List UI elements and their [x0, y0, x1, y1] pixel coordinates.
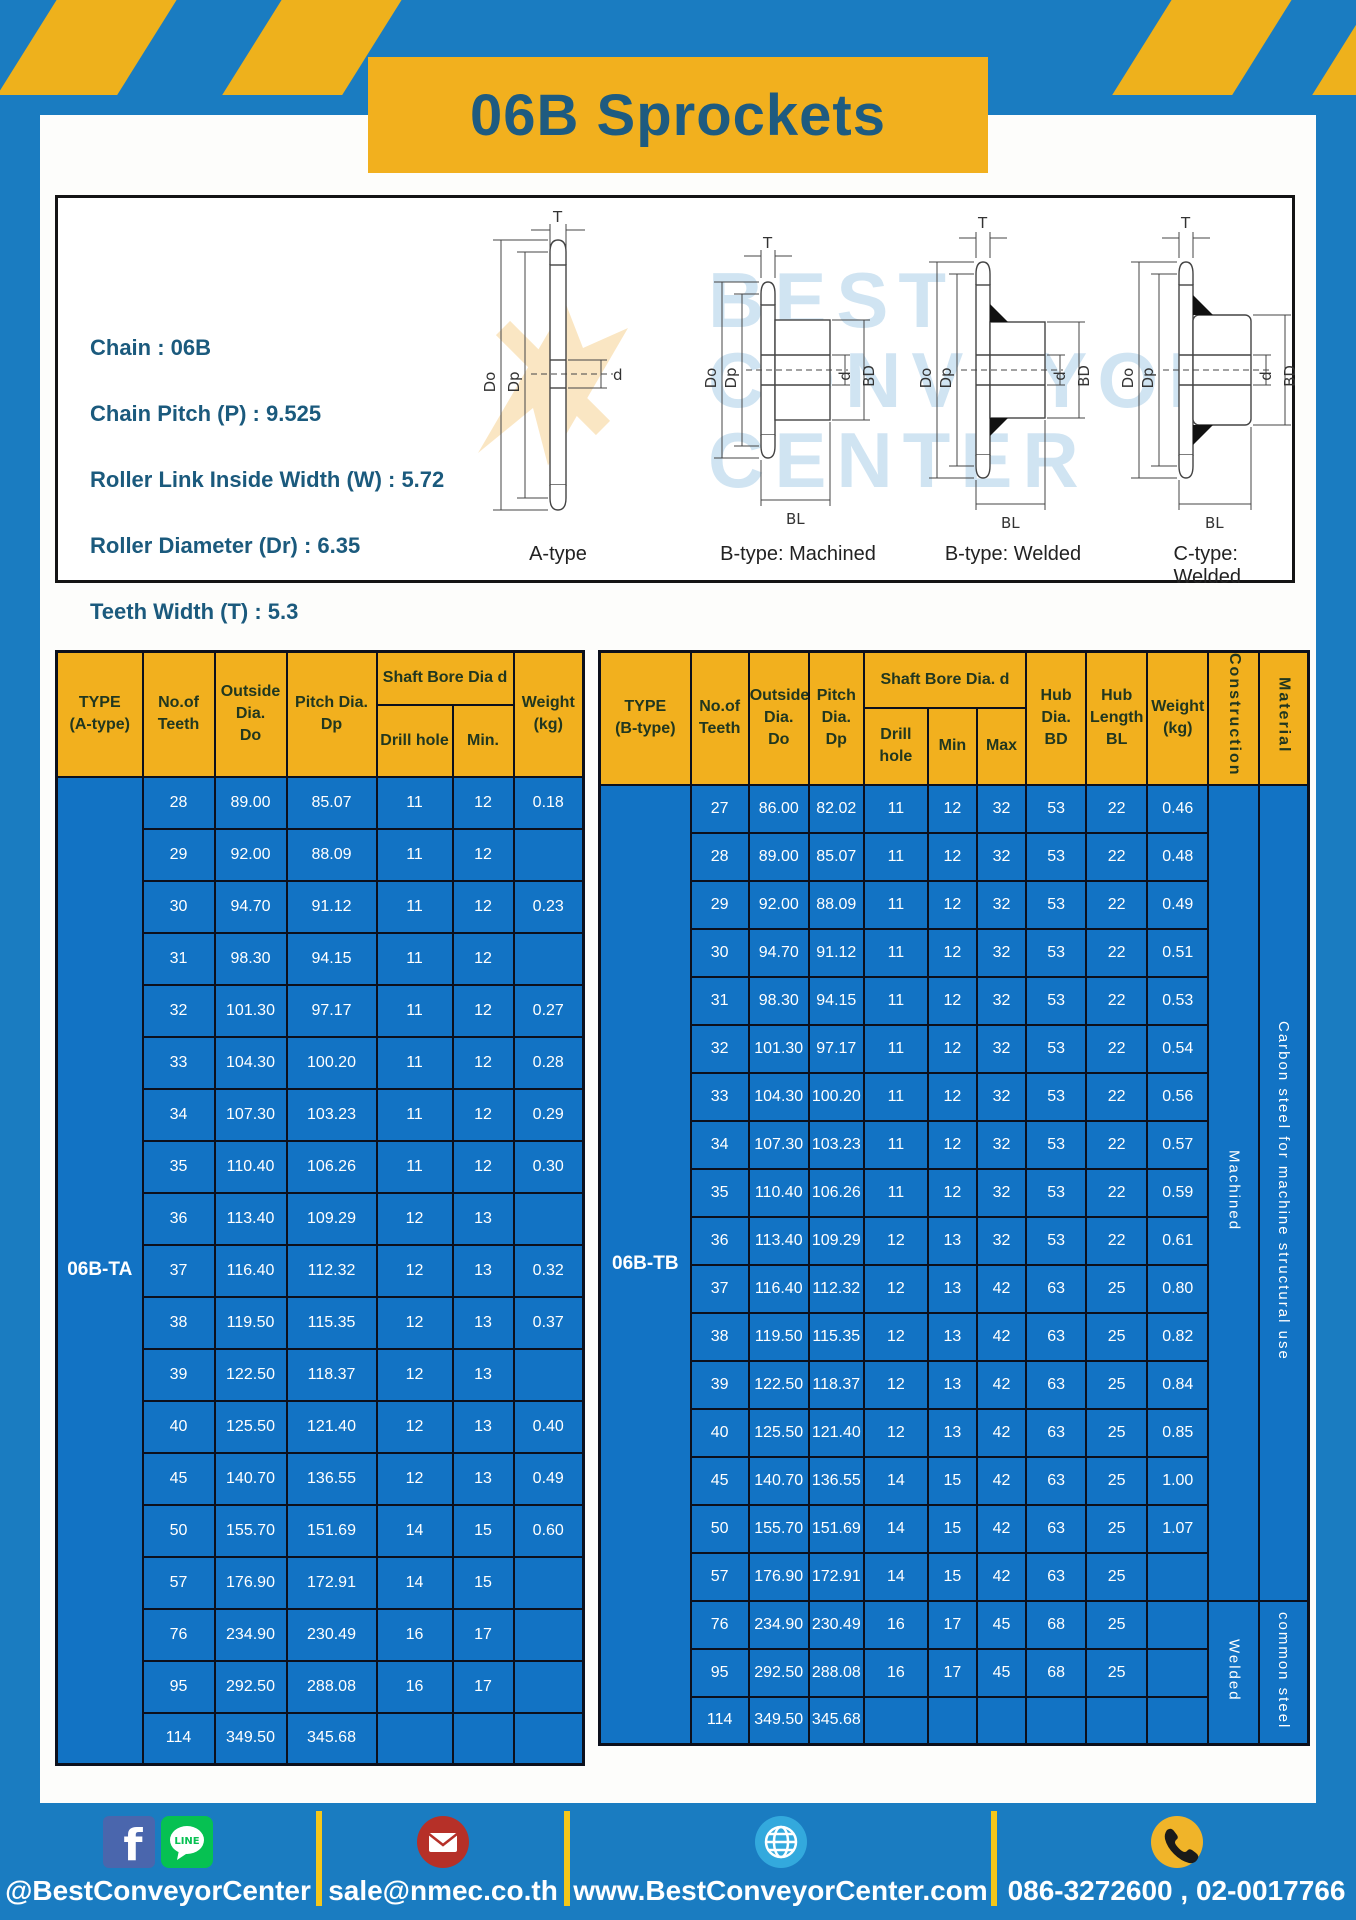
footer-contact-bar: f LINE @BestConveyorCenter sale — [0, 1803, 1356, 1920]
table-cell: 107.30 — [215, 1089, 287, 1141]
table-cell: 39 — [691, 1361, 749, 1409]
table-cell: 13 — [453, 1193, 514, 1245]
table-cell: 0.51 — [1147, 929, 1208, 977]
table-cell: 11 — [377, 985, 453, 1037]
dim-label-t: T — [977, 214, 988, 232]
col-header-min: Min. — [453, 705, 514, 777]
table-cell: 12 — [377, 1297, 453, 1349]
table-cell: 1.07 — [1147, 1505, 1208, 1553]
table-cell: 234.90 — [749, 1601, 809, 1649]
table-cell: 0.49 — [1147, 881, 1208, 929]
table-row: 50155.70151.6914154263251.07 — [600, 1505, 1309, 1553]
caption-b-machined: B-type: Machined — [720, 543, 876, 566]
table-cell: 22 — [1086, 929, 1147, 977]
col-header-teeth: No.of Teeth — [691, 652, 749, 785]
footer-website-section: www.BestConveyorCenter.com — [570, 1803, 991, 1920]
table-cell: 91.12 — [287, 881, 377, 933]
table-cell: 0.85 — [1147, 1409, 1208, 1457]
table-cell: 121.40 — [809, 1409, 864, 1457]
table-cell: 33 — [143, 1037, 215, 1089]
table-cell: 12 — [864, 1409, 928, 1457]
table-cell: 42 — [977, 1265, 1026, 1313]
table-row: 95292.50288.081617456825 — [600, 1649, 1309, 1697]
footer-social-section: f LINE @BestConveyorCenter — [0, 1803, 316, 1920]
table-cell: 12 — [928, 1121, 977, 1169]
table-row: 36113.40109.2912133253220.61 — [600, 1217, 1309, 1265]
table-cell: 107.30 — [749, 1121, 809, 1169]
table-cell: 37 — [143, 1245, 215, 1297]
table-cell: 88.09 — [809, 881, 864, 929]
table-cell: 28 — [143, 777, 215, 829]
table-cell: 22 — [1086, 881, 1147, 929]
svg-text:f: f — [123, 1820, 143, 1868]
svg-text:LINE: LINE — [174, 1836, 199, 1847]
table-cell: 32 — [977, 833, 1026, 881]
table-cell: 349.50 — [215, 1713, 287, 1765]
table-cell: 14 — [864, 1553, 928, 1601]
table-cell — [514, 1557, 584, 1609]
spec-block: Chain : 06B Chain Pitch (P) : 9.525 Roll… — [90, 298, 444, 661]
table-cell: 118.37 — [287, 1349, 377, 1401]
table-cell: 25 — [1086, 1313, 1147, 1361]
table-cell: 0.59 — [1147, 1169, 1208, 1217]
table-cell — [1147, 1697, 1208, 1745]
construction-cell: Machined — [1208, 785, 1259, 1601]
table-cell: 63 — [1026, 1409, 1086, 1457]
table-row: 2889.0085.0711123253220.48 — [600, 833, 1309, 881]
globe-icon[interactable] — [754, 1815, 808, 1869]
hazard-stripe — [1312, 0, 1356, 95]
table-cell: 53 — [1026, 881, 1086, 929]
table-cell: 25 — [1086, 1601, 1147, 1649]
dim-label-d: d — [613, 366, 623, 384]
table-cell: 0.29 — [514, 1089, 584, 1141]
table-cell: 32 — [977, 1073, 1026, 1121]
table-cell: 45 — [977, 1649, 1026, 1697]
table-cell: 88.09 — [287, 829, 377, 881]
table-cell: 12 — [377, 1193, 453, 1245]
col-header-pitch-dia: Pitch Dia. Dp — [809, 652, 864, 785]
dim-label-bd: BD — [1075, 365, 1093, 387]
table-cell: 76 — [143, 1609, 215, 1661]
col-header-hub-dia: Hub Dia. BD — [1026, 652, 1086, 785]
col-header-shaft-bore: Shaft Bore Dia. d — [864, 652, 1026, 708]
table-cell: 35 — [691, 1169, 749, 1217]
table-cell: 12 — [453, 1037, 514, 1089]
table-cell: 172.91 — [287, 1557, 377, 1609]
table-cell: 31 — [143, 933, 215, 985]
dim-label-bd: BD — [860, 365, 878, 387]
table-cell — [377, 1713, 453, 1765]
table-cell: 53 — [1026, 1169, 1086, 1217]
spec-chain: Chain : 06B — [90, 331, 444, 364]
table-cell: 25 — [1086, 1409, 1147, 1457]
table-cell: 12 — [377, 1453, 453, 1505]
table-cell: 0.37 — [514, 1297, 584, 1349]
table-cell: 98.30 — [749, 977, 809, 1025]
table-cell: 17 — [928, 1601, 977, 1649]
table-cell: 109.29 — [809, 1217, 864, 1265]
table-cell: 11 — [377, 933, 453, 985]
table-cell: 11 — [864, 1121, 928, 1169]
table-cell: 42 — [977, 1409, 1026, 1457]
website-url[interactable]: www.BestConveyorCenter.com — [573, 1875, 987, 1907]
spec-roller-width: Roller Link Inside Width (W) : 5.72 — [90, 463, 444, 496]
table-cell: 110.40 — [215, 1141, 287, 1193]
table-cell: 63 — [1026, 1361, 1086, 1409]
table-cell: 114 — [143, 1713, 215, 1765]
table-cell: 115.35 — [809, 1313, 864, 1361]
table-cell: 17 — [928, 1649, 977, 1697]
table-cell: 42 — [977, 1457, 1026, 1505]
table-cell: 12 — [928, 1073, 977, 1121]
table-cell — [514, 1349, 584, 1401]
col-header-type: TYPE (B-type) — [600, 652, 691, 785]
table-cell: 22 — [1086, 977, 1147, 1025]
table-cell: 22 — [1086, 785, 1147, 833]
table-cell: 25 — [1086, 1505, 1147, 1553]
email-icon[interactable] — [416, 1815, 470, 1869]
page-title: 06B Sprockets — [470, 82, 886, 149]
table-cell: 292.50 — [749, 1649, 809, 1697]
table-cell: 53 — [1026, 1217, 1086, 1265]
table-cell: 0.56 — [1147, 1073, 1208, 1121]
table-cell: 113.40 — [215, 1193, 287, 1245]
col-header-outside-dia: Outside Dia. Do — [215, 652, 287, 777]
table-cell: 14 — [864, 1505, 928, 1553]
table-cell: 85.07 — [809, 833, 864, 881]
table-cell: 63 — [1026, 1313, 1086, 1361]
table-cell: 110.40 — [749, 1169, 809, 1217]
table-cell: 32 — [977, 1025, 1026, 1073]
table-cell: 0.48 — [1147, 833, 1208, 881]
table-cell: 94.70 — [215, 881, 287, 933]
table-cell: 136.55 — [287, 1453, 377, 1505]
hazard-stripe — [0, 0, 183, 95]
table-cell: 32 — [691, 1025, 749, 1073]
table-cell: 12 — [864, 1265, 928, 1313]
sheet-body: 06B Sprockets BEST CONVEYOR CENTER Chain… — [40, 115, 1316, 1803]
table-row: 33104.30100.2011123253220.56 — [600, 1073, 1309, 1121]
col-header-pitch-dia: Pitch Dia. Dp — [287, 652, 377, 777]
table-cell: 97.17 — [287, 985, 377, 1037]
table-row: 76234.90230.491617456825Weldedcommon ste… — [600, 1601, 1309, 1649]
dim-label-bl: BL — [1001, 514, 1020, 532]
sprocket-diagram-b-welded: T Do Dp d BD BL — [913, 210, 1113, 540]
dim-label-do: Do — [481, 372, 499, 393]
table-cell: 30 — [143, 881, 215, 933]
table-row: 37116.40112.3212134263250.80 — [600, 1265, 1309, 1313]
spec-roller-diameter: Roller Diameter (Dr) : 6.35 — [90, 529, 444, 562]
table-cell: 0.80 — [1147, 1265, 1208, 1313]
table-cell: 32 — [977, 929, 1026, 977]
table-cell: 53 — [1026, 1121, 1086, 1169]
table-cell: 17 — [453, 1661, 514, 1713]
table-cell: 172.91 — [809, 1553, 864, 1601]
dim-label-dp: Dp — [1139, 367, 1157, 388]
table-cell: 116.40 — [749, 1265, 809, 1313]
table-row: 114349.50345.68 — [600, 1697, 1309, 1745]
facebook-icon[interactable]: f — [103, 1816, 155, 1868]
table-cell: 100.20 — [809, 1073, 864, 1121]
table-cell: 32 — [977, 1121, 1026, 1169]
table-cell: 176.90 — [749, 1553, 809, 1601]
table-cell: 114 — [691, 1697, 749, 1745]
table-cell: 36 — [691, 1217, 749, 1265]
table-cell: 12 — [377, 1245, 453, 1297]
table-cell: 14 — [377, 1505, 453, 1557]
table-cell: 14 — [377, 1557, 453, 1609]
table-cell: 112.32 — [809, 1265, 864, 1313]
table-cell: 116.40 — [215, 1245, 287, 1297]
dim-label-t: T — [552, 210, 563, 226]
table-cell: 12 — [864, 1313, 928, 1361]
table-cell: 11 — [864, 977, 928, 1025]
table-cell: 0.46 — [1147, 785, 1208, 833]
table-cell: 11 — [377, 1037, 453, 1089]
table-cell: 15 — [453, 1557, 514, 1609]
table-cell: 57 — [691, 1553, 749, 1601]
table-cell: 98.30 — [215, 933, 287, 985]
table-cell: 125.50 — [215, 1401, 287, 1453]
table-cell: 39 — [143, 1349, 215, 1401]
col-header-drill-hole: Drill hole — [864, 708, 928, 785]
table-cell — [514, 1661, 584, 1713]
table-cell: 29 — [143, 829, 215, 881]
table-cell: 92.00 — [749, 881, 809, 929]
table-cell: 12 — [453, 933, 514, 985]
table-cell: 37 — [691, 1265, 749, 1313]
table-cell: 119.50 — [215, 1297, 287, 1349]
table-cell: 0.23 — [514, 881, 584, 933]
table-cell: 94.15 — [287, 933, 377, 985]
email-address[interactable]: sale@nmec.co.th — [328, 1875, 558, 1907]
dim-label-dp: Dp — [505, 371, 523, 392]
table-cell: 63 — [1026, 1553, 1086, 1601]
table-cell: 76 — [691, 1601, 749, 1649]
phone-numbers[interactable]: 086-3272600 , 02-0017766 — [1008, 1875, 1346, 1907]
table-cell: 14 — [864, 1457, 928, 1505]
table-cell: 11 — [377, 777, 453, 829]
table-cell: 34 — [143, 1089, 215, 1141]
social-handle[interactable]: @BestConveyorCenter — [5, 1875, 311, 1907]
table-cell: 12 — [377, 1401, 453, 1453]
col-header-drill-hole: Drill hole — [377, 705, 453, 777]
table-cell — [514, 1713, 584, 1765]
spec-chain-pitch: Chain Pitch (P) : 9.525 — [90, 397, 444, 430]
sprocket-diagram-c-welded: T Do Dp d BD BL — [1113, 210, 1313, 540]
dim-label-t: T — [762, 234, 773, 252]
col-header-construction: Construction — [1208, 652, 1259, 785]
dim-label-dp: Dp — [937, 367, 955, 388]
table-cell: 22 — [1086, 833, 1147, 881]
table-cell: 15 — [928, 1553, 977, 1601]
table-cell: 11 — [864, 833, 928, 881]
table-cell: 0.61 — [1147, 1217, 1208, 1265]
table-cell: 45 — [977, 1601, 1026, 1649]
table-cell: 32 — [977, 1169, 1026, 1217]
table-cell: 29 — [691, 881, 749, 929]
table-cell: 288.08 — [809, 1649, 864, 1697]
col-header-material: Material — [1259, 652, 1308, 785]
col-header-hub-length: Hub Length BL — [1086, 652, 1147, 785]
table-cell: 115.35 — [287, 1297, 377, 1349]
table-cell: 94.15 — [809, 977, 864, 1025]
table-a-type: TYPE (A-type) No.of Teeth Outside Dia. D… — [55, 650, 585, 1766]
table-cell: 22 — [1086, 1217, 1147, 1265]
table-cell: 32 — [143, 985, 215, 1037]
table-cell: 13 — [928, 1409, 977, 1457]
table-cell: 25 — [1086, 1649, 1147, 1697]
table-cell: 100.20 — [287, 1037, 377, 1089]
table-cell: 15 — [453, 1505, 514, 1557]
table-cell: 125.50 — [749, 1409, 809, 1457]
table-cell — [1147, 1649, 1208, 1697]
table-b-header: TYPE (B-type) No.of Teeth Outside Dia. D… — [600, 652, 1309, 785]
table-cell: 13 — [928, 1361, 977, 1409]
table-cell: 0.82 — [1147, 1313, 1208, 1361]
table-cell: 95 — [691, 1649, 749, 1697]
table-cell: 112.32 — [287, 1245, 377, 1297]
table-cell: 0.49 — [514, 1453, 584, 1505]
table-cell: 11 — [864, 785, 928, 833]
col-header-weight: Weight (kg) — [514, 652, 584, 777]
table-cell: 86.00 — [749, 785, 809, 833]
table-cell: 85.07 — [287, 777, 377, 829]
dim-label-bl: BL — [786, 510, 805, 528]
table-cell: 12 — [453, 829, 514, 881]
table-cell: 12 — [453, 1089, 514, 1141]
table-cell: 12 — [453, 881, 514, 933]
col-header-type: TYPE (A-type) — [57, 652, 143, 777]
dim-label-d: d — [836, 371, 854, 381]
table-cell: 12 — [928, 1025, 977, 1073]
table-cell: 12 — [453, 777, 514, 829]
table-cell: 121.40 — [287, 1401, 377, 1453]
table-cell: 27 — [691, 785, 749, 833]
table-cell: 13 — [453, 1453, 514, 1505]
table-cell: 151.69 — [809, 1505, 864, 1553]
table-cell — [453, 1713, 514, 1765]
table-cell: 42 — [977, 1505, 1026, 1553]
table-cell: 118.37 — [809, 1361, 864, 1409]
phone-icon[interactable] — [1150, 1815, 1204, 1869]
table-cell: 32 — [977, 785, 1026, 833]
table-cell: 57 — [143, 1557, 215, 1609]
table-row: 34107.30103.2311123253220.57 — [600, 1121, 1309, 1169]
table-row: 2992.0088.0911123253220.49 — [600, 881, 1309, 929]
table-cell: 140.70 — [215, 1453, 287, 1505]
table-cell: 25 — [1086, 1457, 1147, 1505]
datasheet-page: 06B Sprockets BEST CONVEYOR CENTER Chain… — [0, 0, 1356, 1920]
table-cell: 109.29 — [287, 1193, 377, 1245]
table-cell: 122.50 — [749, 1361, 809, 1409]
table-cell: 11 — [864, 1073, 928, 1121]
table-cell: 32 — [977, 1217, 1026, 1265]
table-cell: 13 — [453, 1401, 514, 1453]
table-cell: 17 — [453, 1609, 514, 1661]
table-cell: 22 — [1086, 1073, 1147, 1121]
material-cell: Carbon steel for machine structural use — [1259, 785, 1308, 1601]
table-cell: 53 — [1026, 977, 1086, 1025]
table-cell: 11 — [864, 929, 928, 977]
table-cell: 0.54 — [1147, 1025, 1208, 1073]
table-cell: 53 — [1026, 785, 1086, 833]
table-cell: 91.12 — [809, 929, 864, 977]
table-cell: 53 — [1026, 833, 1086, 881]
table-cell: 16 — [864, 1649, 928, 1697]
dim-label-d: d — [1257, 371, 1275, 381]
table-row: 06B-TB2786.0082.0211123253220.46Machined… — [600, 785, 1309, 833]
col-header-min: Min — [928, 708, 977, 785]
col-header-teeth: No.of Teeth — [143, 652, 215, 777]
table-cell: 16 — [864, 1601, 928, 1649]
table-cell: 151.69 — [287, 1505, 377, 1557]
table-cell: 68 — [1026, 1601, 1086, 1649]
table-cell: 101.30 — [749, 1025, 809, 1073]
table-row: 38119.50115.3512134263250.82 — [600, 1313, 1309, 1361]
table-cell: 25 — [1086, 1553, 1147, 1601]
line-icon[interactable]: LINE — [161, 1816, 213, 1868]
table-cell: 12 — [377, 1349, 453, 1401]
table-cell: 0.40 — [514, 1401, 584, 1453]
table-cell: 155.70 — [215, 1505, 287, 1557]
table-cell: 0.57 — [1147, 1121, 1208, 1169]
table-cell: 28 — [691, 833, 749, 881]
table-cell: 15 — [928, 1457, 977, 1505]
table-cell: 15 — [928, 1505, 977, 1553]
table-cell: 12 — [864, 1217, 928, 1265]
table-cell: 30 — [691, 929, 749, 977]
table-cell: 292.50 — [215, 1661, 287, 1713]
table-cell: 136.55 — [809, 1457, 864, 1505]
dim-label-bl: BL — [1205, 514, 1224, 532]
table-cell — [864, 1697, 928, 1745]
table-cell: 0.28 — [514, 1037, 584, 1089]
table-cell: 40 — [691, 1409, 749, 1457]
table-cell: 22 — [1086, 1121, 1147, 1169]
type-label-cell: 06B-TB — [600, 785, 691, 1745]
table-cell — [1147, 1553, 1208, 1601]
table-cell: 0.53 — [1147, 977, 1208, 1025]
table-a-header: TYPE (A-type) No.of Teeth Outside Dia. D… — [57, 652, 584, 777]
dim-label-do: Do — [1119, 368, 1137, 389]
table-cell: 11 — [377, 1141, 453, 1193]
table-cell: 106.26 — [287, 1141, 377, 1193]
dim-label-d: d — [1051, 371, 1069, 381]
table-cell — [928, 1697, 977, 1745]
table-cell: 104.30 — [215, 1037, 287, 1089]
dim-label-t: T — [1180, 214, 1191, 232]
table-row: 3198.3094.1511123253220.53 — [600, 977, 1309, 1025]
table-cell: 89.00 — [215, 777, 287, 829]
table-cell: 230.49 — [287, 1609, 377, 1661]
table-cell: 40 — [143, 1401, 215, 1453]
table-row: 39122.50118.3712134263250.84 — [600, 1361, 1309, 1409]
table-cell — [1086, 1697, 1147, 1745]
col-header-shaft-bore: Shaft Bore Dia d — [377, 652, 514, 705]
table-cell: 0.32 — [514, 1245, 584, 1297]
table-cell: 140.70 — [749, 1457, 809, 1505]
table-cell: 0.18 — [514, 777, 584, 829]
table-cell: 25 — [1086, 1361, 1147, 1409]
footer-phone-section: 086-3272600 , 02-0017766 — [997, 1803, 1356, 1920]
table-cell: 63 — [1026, 1505, 1086, 1553]
table-cell — [1147, 1601, 1208, 1649]
table-cell: 68 — [1026, 1649, 1086, 1697]
table-cell: 122.50 — [215, 1349, 287, 1401]
diagram-panel: BEST CONVEYOR CENTER Chain : 06B Chain P… — [55, 195, 1295, 583]
